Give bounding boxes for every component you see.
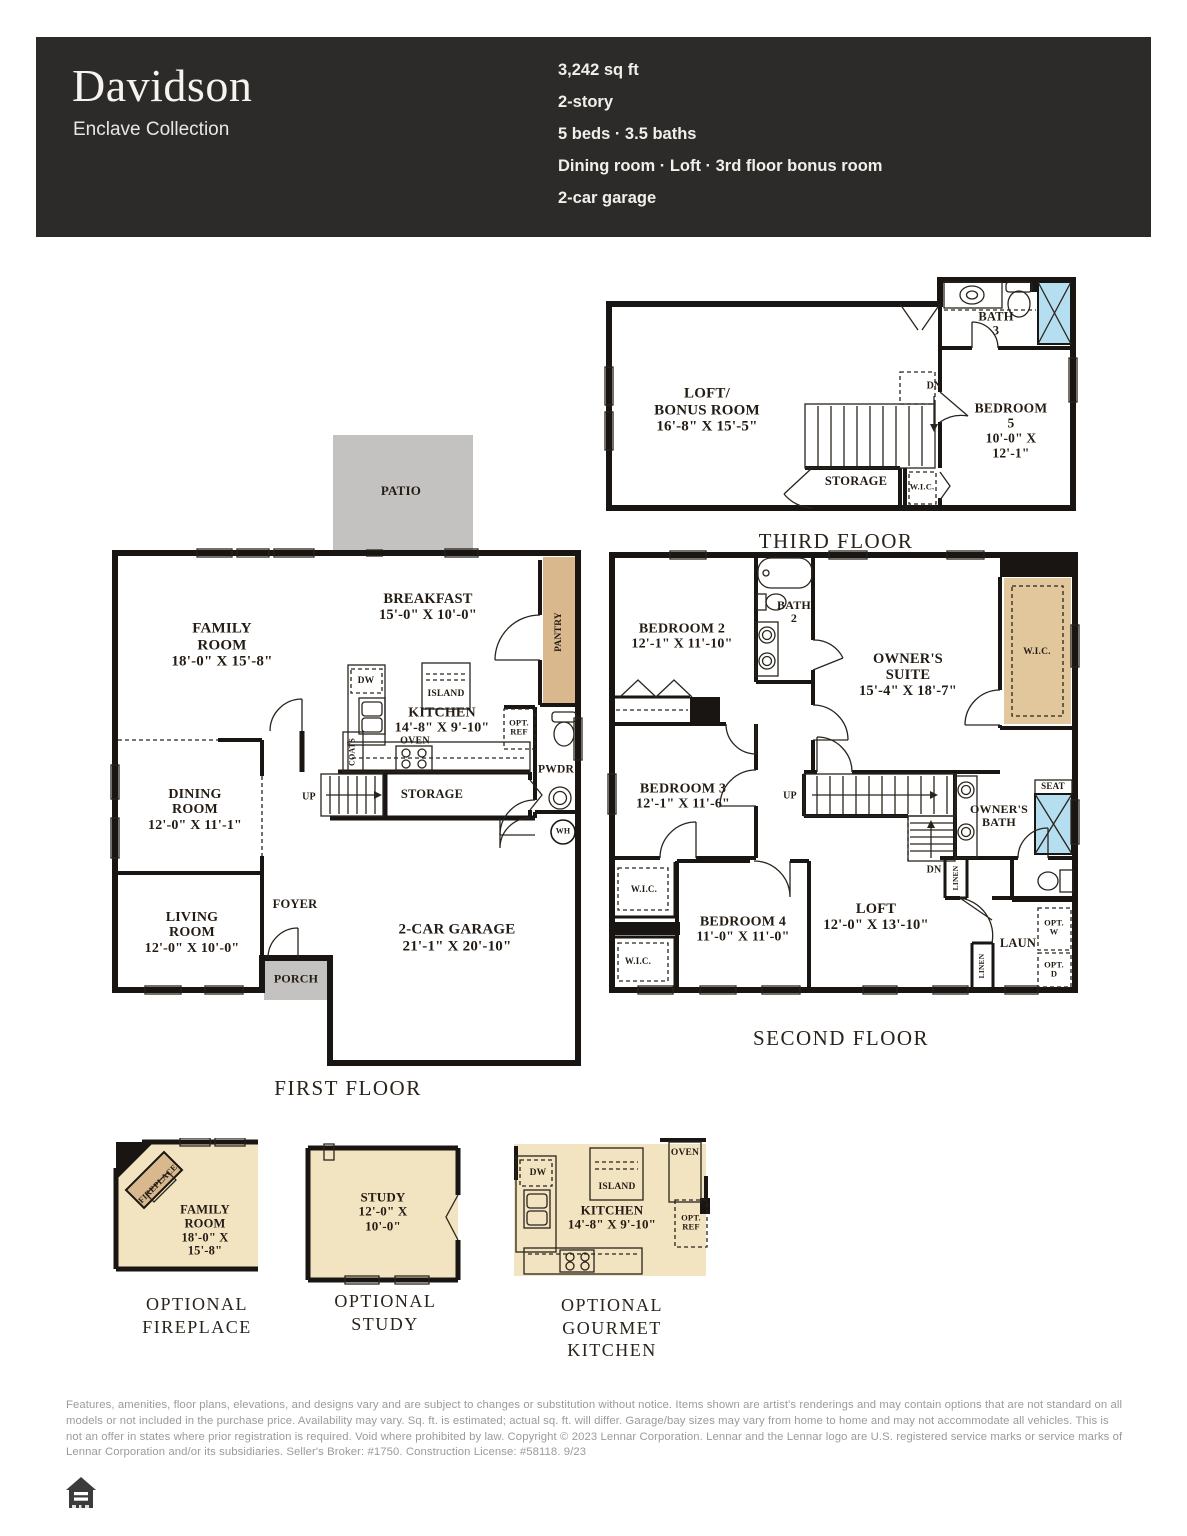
label-linen-b: LINEN — [978, 954, 986, 979]
label-breakfast: BREAKFAST 15'-0" X 10'-0" — [379, 592, 477, 624]
spec-garage: 2-car garage — [558, 189, 882, 208]
label-kitchen: KITCHEN 14'-8" X 9'-10" — [395, 706, 490, 737]
equal-housing-opportunity-icon — [64, 1476, 98, 1517]
spec-rooms: Dining room · Loft · 3rd floor bonus roo… — [558, 157, 882, 176]
label-oven: OVEN — [400, 736, 430, 747]
label-wic-b: W.I.C. — [625, 957, 651, 967]
label-bedroom-5: BEDROOM 5 10'-0" X 12'-1" — [975, 401, 1048, 460]
third-floor-plan: LOFT/ BONUS ROOM 16'-8" X 15'-5" BATH 3 … — [600, 272, 1080, 564]
label-bath-2: BATH 2 — [777, 599, 811, 625]
collection-subtitle: Enclave Collection — [73, 119, 229, 141]
label-opt-ref: OPT. REF — [509, 719, 529, 738]
legal-disclaimer: Features, amenities, floor plans, elevat… — [66, 1398, 1124, 1461]
stairs-icon — [321, 774, 383, 816]
first-floor-plan: PATIO FAMILY ROOM 18'-0" X 15'-8" BREAKF… — [100, 420, 600, 1120]
label-wic-a: W.I.C. — [631, 885, 657, 895]
label-opt-d: OPT. D — [1044, 961, 1064, 980]
label-dining-room: DINING ROOM 12'-0" X 11'-1" — [148, 787, 242, 833]
label-bedroom-3: BEDROOM 3 12'-1" X 11'-6" — [636, 782, 730, 813]
stairs-icon — [805, 372, 938, 468]
label-opt-ref-option: OPT. REF — [681, 1214, 701, 1233]
label-storage: STORAGE — [401, 788, 463, 802]
label-owners-suite: OWNER'S SUITE 15'-4" X 18'-7" — [859, 652, 957, 700]
label-foyer: FOYER — [273, 898, 318, 912]
second-floor-caption: SECOND FLOOR — [753, 1025, 929, 1051]
second-floor-plan: BEDROOM 2 12'-1" X 11'-10" BATH 2 OWNER'… — [600, 540, 1090, 1060]
label-family-room: FAMILY ROOM 18'-0" X 15'-8" — [171, 620, 272, 670]
bedroom2-closet — [616, 680, 692, 710]
label-dw: DW — [358, 676, 375, 686]
label-bedroom-2: BEDROOM 2 12'-1" X 11'-10" — [631, 622, 732, 653]
optional-study-plan: STUDY 12'-0" X 10'-0" OPTIONAL STUDY — [300, 1140, 470, 1340]
spec-sqft: 3,242 sq ft — [558, 61, 882, 80]
floorplan-brochure-page: Davidson Enclave Collection 3,242 sq ft … — [0, 0, 1187, 1536]
optional-study-caption: OPTIONAL STUDY — [334, 1290, 435, 1335]
label-oven-option: OVEN — [671, 1148, 699, 1158]
doors — [784, 304, 998, 508]
label-laun: LAUN — [1000, 937, 1036, 951]
label-pantry: PANTRY — [554, 612, 564, 652]
spec-list: 3,242 sq ft 2-story 5 beds · 3.5 baths D… — [558, 61, 882, 221]
optional-fireplace-caption: OPTIONAL FIREPLACE — [142, 1293, 252, 1338]
label-patio: PATIO — [381, 484, 421, 498]
optional-gourmet-kitchen-plan: DW ISLAND KITCHEN 14'-8" X 9'-10" OVEN O… — [500, 1136, 720, 1346]
label-wic-owners: W.I.C. — [1023, 647, 1051, 657]
label-study: STUDY 12'-0" X 10'-0" — [340, 1191, 427, 1234]
spec-beds-baths: 5 beds · 3.5 baths — [558, 125, 882, 144]
pwdr-fixtures — [549, 712, 576, 809]
label-bedroom-4: BEDROOM 4 11'-0" X 11'-0" — [696, 915, 789, 946]
label-kitchen-option: KITCHEN 14'-8" X 9'-10" — [568, 1204, 656, 1233]
label-seat: SEAT — [1041, 782, 1065, 792]
label-bath-3: BATH 3 — [978, 310, 1013, 338]
label-wic: W.I.C. — [910, 482, 935, 491]
label-island: ISLAND — [427, 689, 464, 699]
label-linen-a: LINEN — [952, 866, 960, 891]
label-family-room-option: FAMILY ROOM 18'-0" X 15'-8" — [177, 1204, 234, 1259]
optional-fireplace-plan: FIREPLACE FAMILY ROOM 18'-0" X 15'-8" OP… — [112, 1138, 262, 1353]
optional-gourmet-kitchen-caption: OPTIONAL GOURMET KITCHEN — [558, 1294, 666, 1362]
label-opt-w: OPT. W — [1044, 919, 1064, 938]
label-storage: STORAGE — [825, 475, 887, 489]
label-living-room: LIVING ROOM 12'-0" X 10'-0" — [145, 910, 240, 956]
label-coats: COATS — [349, 738, 358, 766]
header-banner: Davidson Enclave Collection 3,242 sq ft … — [36, 37, 1151, 237]
label-wh: WH — [556, 828, 571, 837]
label-garage: 2-CAR GARAGE 21'-1" X 20'-10" — [399, 922, 516, 955]
label-dw-option: DW — [530, 1168, 547, 1178]
label-up: UP — [783, 791, 797, 802]
label-dn: DN — [927, 865, 942, 876]
label-island-option: ISLAND — [598, 1182, 635, 1192]
spec-stories: 2-story — [558, 93, 882, 112]
shower-icon — [1035, 794, 1072, 854]
label-loft-bonus-room: LOFT/ BONUS ROOM 16'-8" X 15'-5" — [654, 385, 760, 435]
label-loft: LOFT 12'-0" X 13'-10" — [823, 902, 929, 934]
label-up: UP — [302, 792, 316, 803]
label-pwdr: PWDR — [538, 764, 574, 777]
first-floor-drawing — [100, 420, 600, 1120]
first-floor-caption: FIRST FLOOR — [274, 1075, 421, 1101]
label-dn: DN — [927, 381, 942, 392]
shower-icon — [1038, 282, 1071, 344]
label-porch: PORCH — [274, 972, 318, 985]
label-owners-bath: OWNER'S BATH — [970, 803, 1028, 829]
plan-title: Davidson — [72, 59, 252, 112]
